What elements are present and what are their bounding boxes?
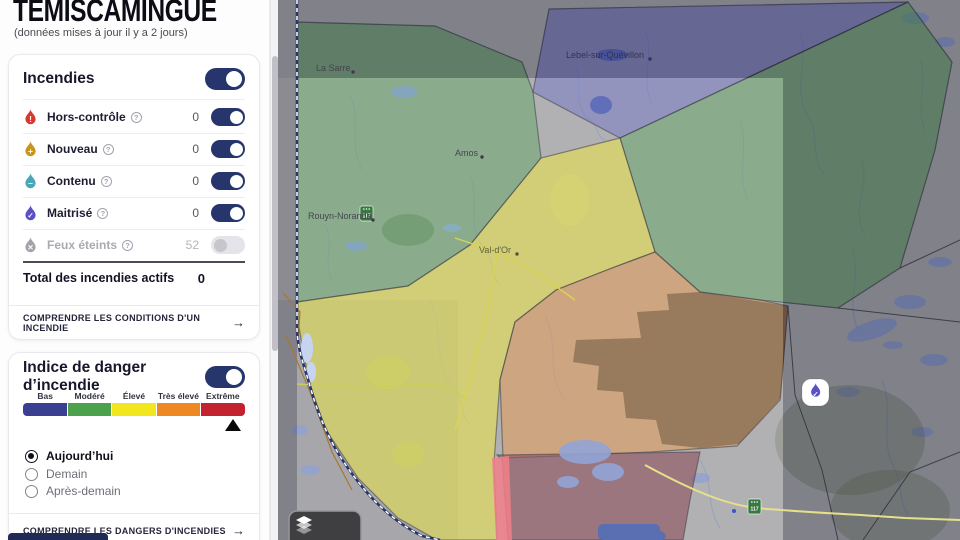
svg-text:117: 117 [750, 507, 758, 513]
fire-extinguished-icon: ✕ [23, 237, 38, 254]
feux-eteints-toggle[interactable] [211, 236, 245, 254]
fires-card: Incendies ! Hors-contrôle ? 0 + Nouveau … [8, 54, 260, 340]
svg-text:✕: ✕ [27, 242, 33, 251]
total-active-fires: Total des incendies actifs 0 [23, 265, 245, 291]
fire-count: 0 [192, 110, 199, 124]
fire-count: 0 [192, 174, 199, 188]
info-icon[interactable]: ? [97, 208, 108, 219]
radio-tomorrow[interactable]: Demain [25, 466, 87, 482]
sidebar: TÉMISCAMINGUE (données mises à jour il y… [0, 0, 270, 540]
fire-count: 0 [192, 142, 199, 156]
hors-controle-toggle[interactable] [211, 108, 245, 126]
understand-fire-conditions-link[interactable]: COMPRENDRE LES CONDITIONS D'UN INCENDIE … [9, 305, 259, 339]
selected-area-highlight [297, 78, 783, 540]
legend-very-high [157, 403, 201, 416]
danger-legend-bar [23, 403, 245, 416]
map-poi-dot [732, 509, 736, 513]
svg-text:✓: ✓ [27, 210, 33, 219]
fire-row-hors-controle: ! Hors-contrôle ? 0 [23, 101, 245, 133]
arrow-right-icon: → [232, 315, 245, 330]
fires-master-toggle[interactable] [205, 68, 245, 90]
label-lebel-sur-quevillon: Lebel-sur-Quévillon [566, 50, 644, 60]
danger-section-title: Indice de danger d’incendie [23, 359, 205, 395]
legend-high [112, 403, 156, 416]
fire-row-contenu: – Contenu ? 0 [23, 165, 245, 197]
map-layers-button[interactable] [289, 511, 361, 540]
controlled-fire-marker[interactable]: ✓ [802, 379, 829, 406]
label-rouyn-noranda: Rouyn-Noranda [308, 211, 372, 221]
svg-text:–: – [28, 177, 33, 187]
fire-new-icon: + [23, 141, 38, 158]
fire-controlled-icon: ✓ [23, 205, 38, 222]
region-title: TÉMISCAMINGUE [13, 0, 217, 29]
fire-row-feux-eteints: ✕ Feux éteints ? 52 [23, 229, 245, 261]
info-icon[interactable]: ? [122, 240, 133, 251]
contenu-toggle[interactable] [211, 172, 245, 190]
next-card-partial [8, 533, 108, 540]
label-val-dor: Val-d'Or [479, 245, 511, 255]
fire-danger-map[interactable]: 117 117 La Sarre Amos Rouyn-Noranda Val-… [278, 0, 960, 540]
app-window: { "header": { "title": "TÉMISCAMINGUE", … [0, 0, 960, 540]
route-117-shield: 117 [748, 499, 761, 514]
legend-extreme [201, 403, 245, 416]
info-icon[interactable]: ? [103, 144, 114, 155]
label-amos: Amos [455, 148, 479, 158]
svg-text:+: + [28, 145, 33, 155]
nouveau-toggle[interactable] [211, 140, 245, 158]
legend-moderate [68, 403, 112, 416]
fire-row-nouveau: + Nouveau ? 0 [23, 133, 245, 165]
danger-index-card: Indice de danger d’incendie Bas Modéré É… [8, 352, 260, 540]
legend-low [23, 403, 67, 416]
danger-legend-labels: Bas Modéré Élevé Très élevé Extrême [23, 391, 245, 401]
sidebar-scrollbar[interactable] [270, 0, 278, 540]
total-active-fires-value: 0 [198, 271, 205, 286]
fire-count: 52 [186, 238, 199, 252]
fire-row-maitrise: ✓ Maitrisé ? 0 [23, 197, 245, 229]
label-la-sarre: La Sarre [316, 63, 351, 73]
fire-contained-icon: – [23, 173, 38, 190]
danger-index-toggle[interactable] [205, 366, 245, 388]
svg-text:✓: ✓ [813, 392, 819, 399]
maitrise-toggle[interactable] [211, 204, 245, 222]
info-icon[interactable]: ? [101, 176, 112, 187]
radio-today[interactable]: Aujourd’hui [25, 448, 113, 464]
current-level-marker-icon [225, 419, 241, 431]
fire-count: 0 [192, 206, 199, 220]
svg-text:!: ! [29, 113, 32, 123]
radio-day-after-tomorrow[interactable]: Après-demain [25, 483, 121, 499]
arrow-right-icon: → [232, 523, 245, 538]
info-icon[interactable]: ? [131, 112, 142, 123]
data-updated-note: (données mises à jour il y a 2 jours) [14, 27, 188, 39]
fires-section-title: Incendies [23, 70, 95, 88]
fire-out-of-control-icon: ! [23, 109, 38, 126]
